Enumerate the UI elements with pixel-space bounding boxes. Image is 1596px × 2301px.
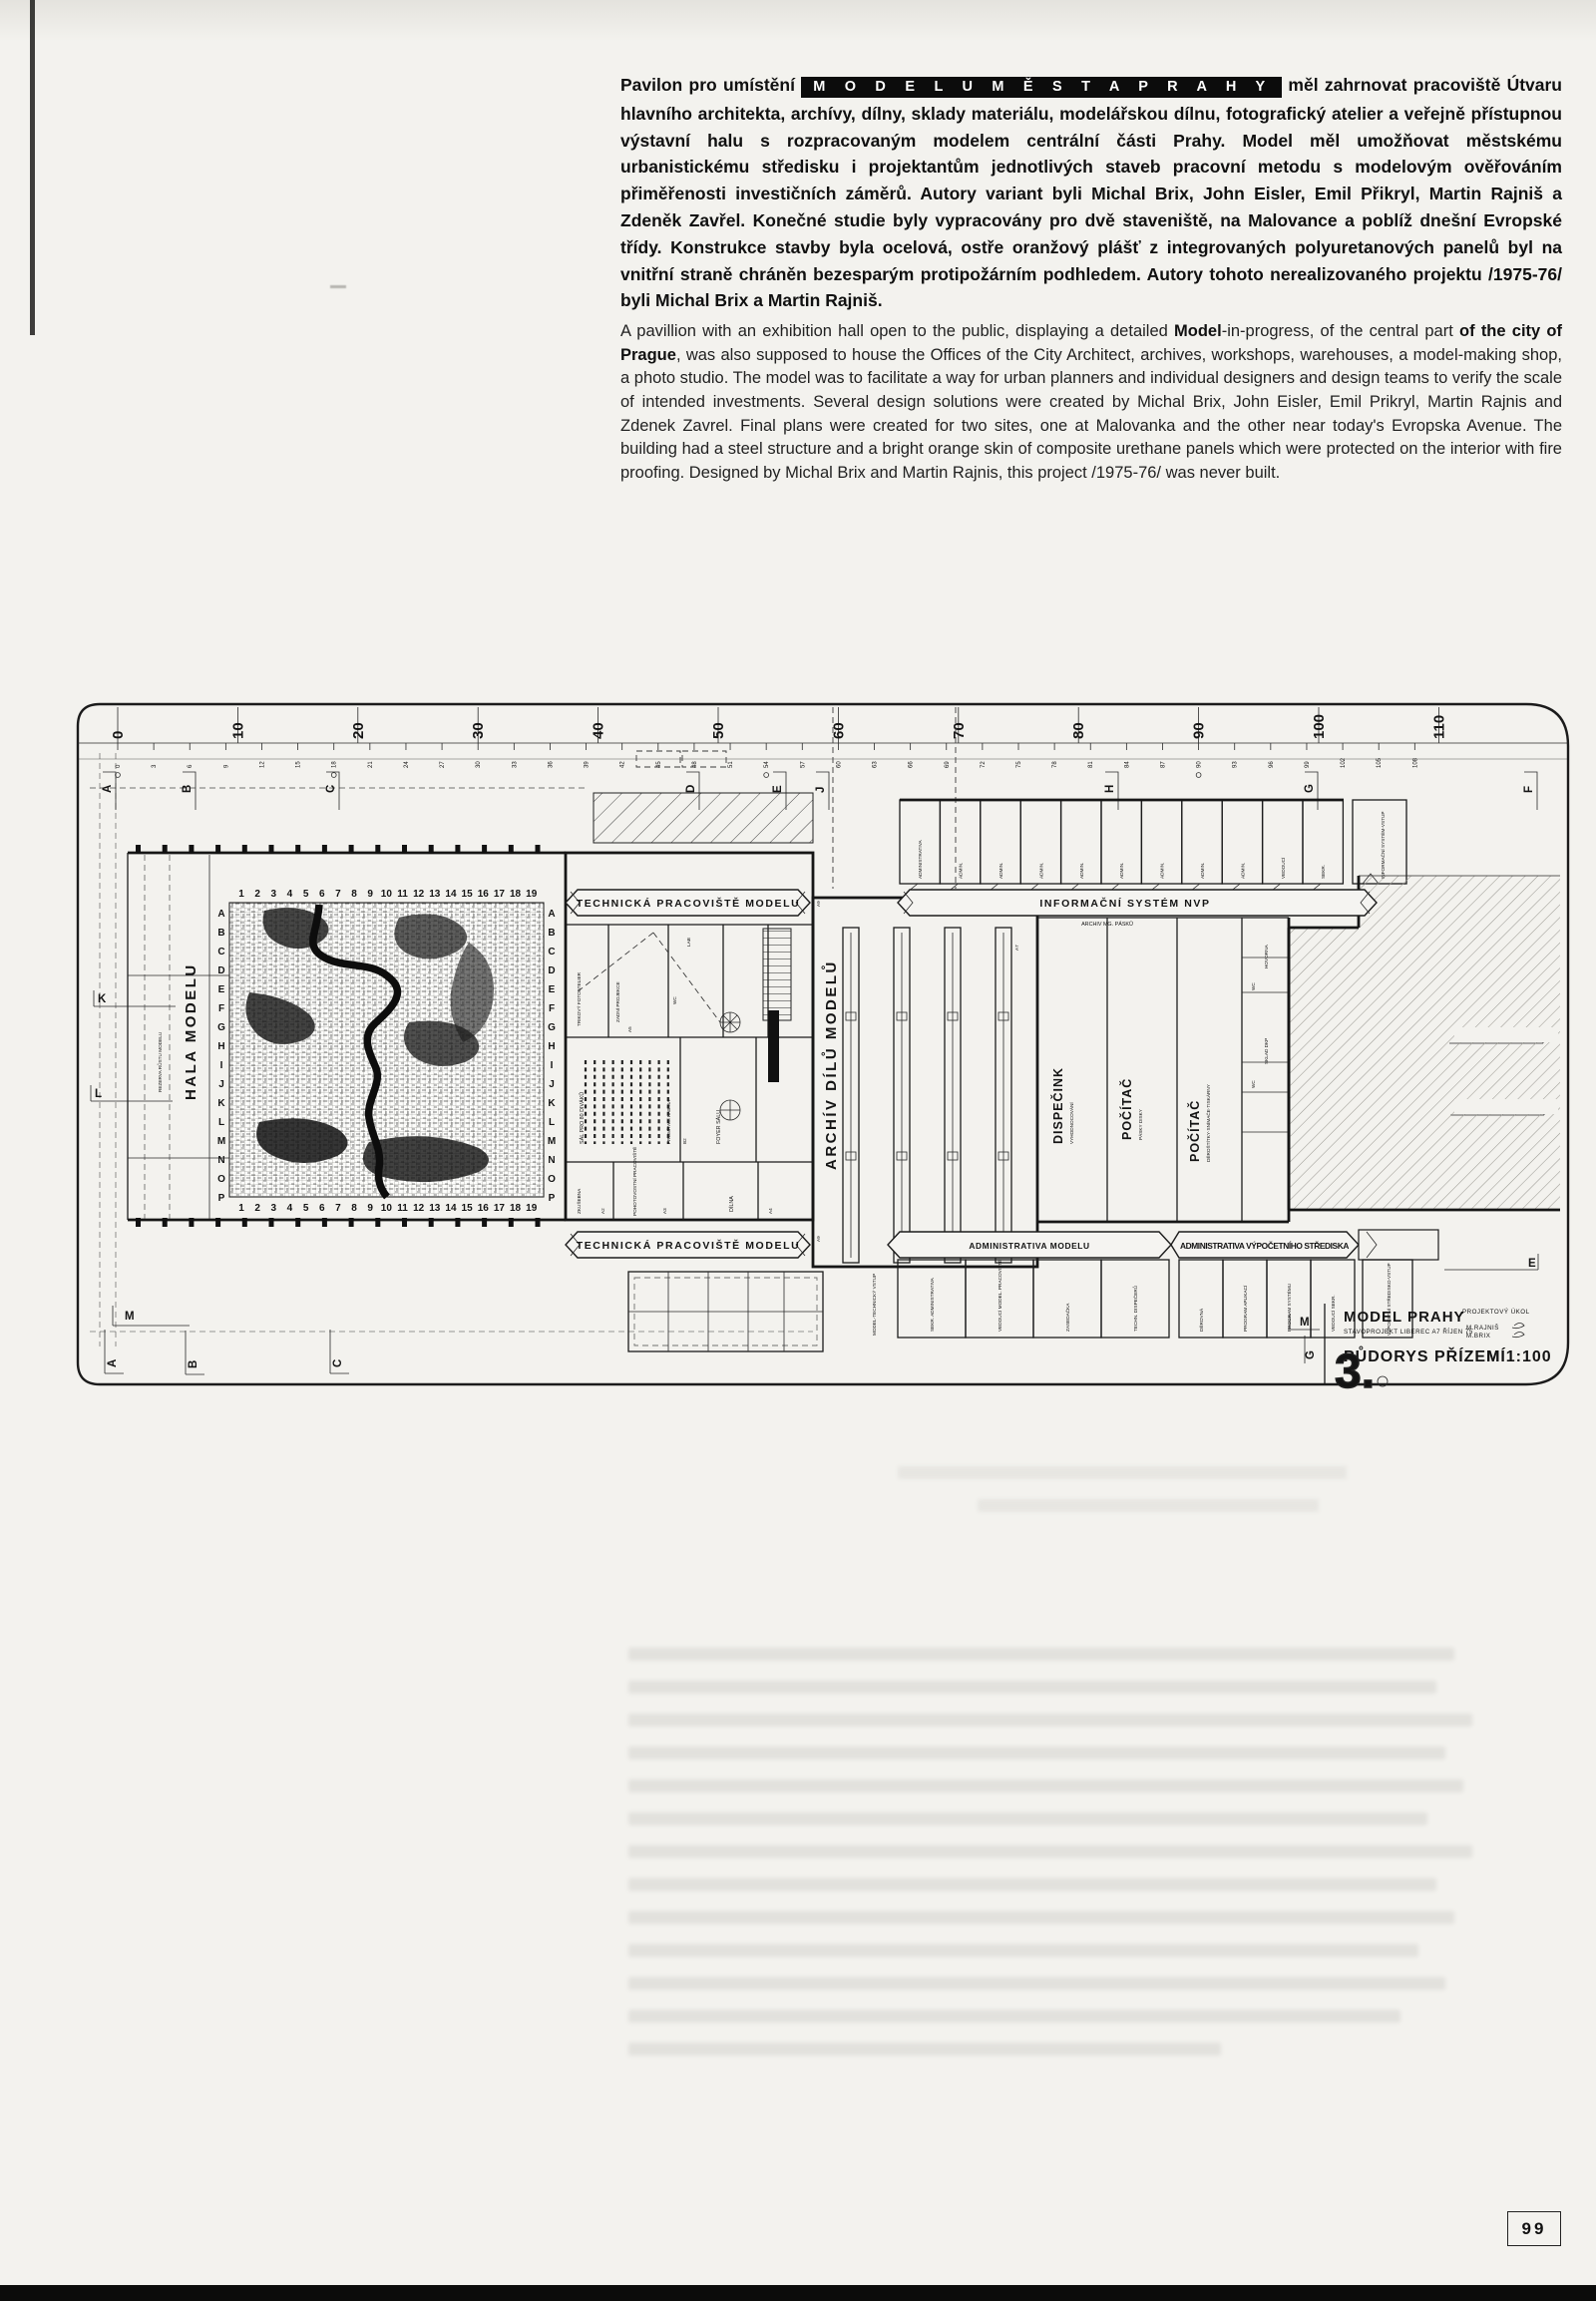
title-project: MODEL PRAHY [1344,1309,1465,1326]
map-row-letter: D [217,965,224,976]
english-paragraph: A pavillion with an exhibition hall open… [620,320,1562,485]
map-row-letter: O [217,1174,225,1185]
bleed-line [628,1944,1418,1957]
map-row-letter: E [218,984,225,995]
room-code: A4 [768,1208,773,1214]
ruler-minor-label: 27 [440,761,446,768]
ruler-major-label: 80 [1070,722,1087,739]
ruler-minor-label: 18 [332,761,338,768]
room-label-pocitac-2-sub: DĚROŠTÍTKY·SNÍMAČE·TISKÁRNY [1204,1083,1211,1162]
map-col-number: 5 [303,1203,309,1214]
corridor-label-tech-bottom: TECHNICKÁ PRACOVIŠTĚ MODELU [577,1239,801,1252]
map-col-number: 11 [397,1203,408,1214]
map-col-number: 14 [445,889,457,900]
room-label-rezerva: REZERVA RŮSTU MODELU [157,1031,163,1092]
registration-dash [330,285,346,288]
ruler-major-label: 110 [1430,715,1447,739]
ruler-minor-label: 93 [1233,761,1239,768]
ruler-minor-label: 57 [800,761,806,768]
admin-cell-label: ADMIN. [1038,863,1043,879]
ruler-minor-label: 66 [909,761,915,768]
scan-noise-strip [0,0,1596,42]
page-number-value: 99 [1522,2219,1547,2239]
map-col-number: 18 [510,889,522,900]
title-highlight: M O D E L U M Ě S T A P R A H Y [801,77,1282,98]
map-row-letter: O [548,1174,556,1185]
room-label-pocitac-1: POČÍTAČ [1119,1078,1134,1140]
ruler-minor-label: 36 [548,761,554,768]
map-row-letter: J [218,1079,224,1090]
room-label-bottom-left: TECHN. DISPEČERŮ [1132,1285,1138,1332]
room-label-bottom-right: PROGRAM SYSTÉMU [1286,1283,1292,1332]
room-label-bottom-left: ZASEDAČKA [1064,1303,1070,1332]
ruler-minor-label: 87 [1160,761,1166,768]
bleed-line [628,1878,1436,1891]
ruler-minor-label: 90 [1197,761,1203,768]
admin-cell-label: SEKR. [1321,865,1326,879]
title-author-2: M.BRIX [1466,1333,1490,1340]
map-row-letter: L [549,1117,555,1128]
bleed-line [628,1681,1436,1694]
ruler-major-label: 20 [350,722,367,739]
bleed-line [628,1812,1427,1825]
room-label-sal: SÁL PRO 80 DIVÁKŮ [579,1092,586,1144]
room-label-bottom-right: VEDOUCÍ SEKR. [1330,1295,1336,1332]
map-col-number: 3 [271,1203,277,1214]
room-label-hovorna: HOVORNA [1264,944,1269,968]
map-row-letter: F [218,1003,224,1014]
map-col-number: 5 [303,889,309,900]
section-marker-top: J [815,787,827,793]
english-seg: A pavillion with an exhibition hall open… [620,322,1174,340]
title-office: STAVOPROJEKT LIBEREC A7 ŘÍJEN 75 [1344,1328,1473,1336]
room-code: A2 [600,1208,605,1214]
scanned-book-page: Pavilon pro umístění M O D E L U M Ě S T… [0,0,1596,2301]
ruler-major-label: 100 [1311,714,1328,739]
ruler-minor-label: 60 [836,761,842,768]
map-row-letter: E [549,984,556,995]
section-marker-top: H [1104,785,1116,793]
ruler-major-label: 40 [591,722,607,739]
room-label-info-vstup: INFORMAČNÍ SYSTÉM-VSTUP [1380,812,1386,879]
map-row-letter: B [217,928,224,939]
hatched-area [1289,876,1560,1210]
czech-lead: Pavilon pro umístění [620,75,801,95]
section-marker-bottom: C [332,1359,344,1367]
corridor-label-admin-modelu: ADMINISTRATIVA MODELU [969,1241,1089,1251]
map-row-letter: G [548,1022,556,1033]
map-row-letter: N [217,1155,224,1166]
map-col-number: 19 [526,1203,538,1214]
room-code: B2 [682,1138,687,1144]
bleed-line [628,2010,1400,2023]
room-label-zadni-projekce: ZADNÍ PROJEKCE [614,981,620,1022]
room-label-trikovy: TRIKOVÝ FOTOATELIER [576,971,582,1026]
title-scale: M 1:100 [1486,1348,1552,1365]
room-code: A7 [1014,945,1019,951]
map-row-letter: C [548,947,555,958]
central-block: TRIKOVÝ FOTOATELIER ZADNÍ PROJEKCE LAB W… [566,751,823,1351]
map-col-number: 16 [478,889,490,900]
map-col-number: 1 [238,889,244,900]
map-col-number: 2 [254,1203,260,1214]
map-row-letter: H [548,1041,555,1052]
ruler-minor-label: 24 [404,761,410,768]
admin-cell-label: ADMIN. [959,863,964,879]
scan-edge-mark [30,0,35,335]
map-col-number: 11 [397,889,408,900]
room-label-hala-modelu: HALA MODELU [183,962,199,1100]
ruler-minor-label: 6 [188,764,194,768]
ruler-minor-label: 105 [1377,757,1383,768]
room-label-pocitac-1-sub: PÁSKY DISKY [1137,1108,1143,1140]
section-marker-top: B [182,785,194,793]
map-col-number: 6 [319,1203,325,1214]
room-label-bottom-left: VEDOUCÍ MODEL. PRACOVIŠTĚ [996,1260,1002,1332]
scan-bottom-strip [0,2285,1596,2301]
ruler-minor-label: 102 [1341,757,1347,768]
ruler-minor-label: 12 [259,761,265,768]
room-code: A9 [816,1236,821,1242]
section-marker-left: L [95,1088,102,1100]
bleed-line [628,1845,1472,1858]
map-row-letter: M [548,1136,556,1147]
map-col-number: 3 [271,889,277,900]
scale-ruler: 0102030405060708090100110036912151821242… [110,707,1447,777]
title-task: PROJEKTOVÝ ÚKOL [1462,1309,1530,1316]
map-col-number: 10 [381,1203,393,1214]
sheet-number: 3. [1335,1345,1375,1391]
admin-cell-label: ADMIN. [1240,863,1245,879]
bleed-line [628,1977,1445,1990]
auditorium-seats [586,1060,668,1144]
map-col-number: 7 [335,889,341,900]
room-label-wc: WC [1251,982,1256,990]
room-label-foyer: FOYER SÁLU [715,1110,722,1144]
room-label-zkusebna: ZKUŠEBNA [576,1188,582,1214]
room-label-sklad-dkp: SKLAD DKP [1264,1038,1269,1064]
map-row-letter: B [548,928,555,939]
map-col-number: 4 [287,1203,293,1214]
bleed-line [628,1746,1445,1759]
english-seg: -in-progress, of the central part [1222,322,1459,340]
map-row-letter: C [217,947,224,958]
room-code: A6 [767,1026,772,1032]
section-marker-bottom: B [188,1360,199,1368]
map-col-number: 2 [254,889,260,900]
section-marker-left: K [98,993,107,1005]
map-col-number: 17 [494,1203,506,1214]
map-col-number: 15 [462,889,474,900]
english-seg: , was also supposed to house the Offices… [620,346,1562,482]
map-col-number: 4 [287,889,293,900]
bleed-line [628,1911,1454,1924]
ruler-minor-label: 9 [223,764,229,768]
room-label-promitaci: PROMÍTACÍ KABINA [665,1099,671,1144]
corridor-label-tech-top: TECHNICKÁ PRACOVIŠTĚ MODELU [577,897,801,910]
map-row-letter: M [217,1136,225,1147]
ruler-minor-label: 108 [1412,757,1418,768]
signature-squiggle [1512,1324,1524,1338]
ruler-minor-label: 63 [873,761,879,768]
map-row-letter: P [549,1193,556,1204]
map-col-number: 13 [429,889,441,900]
map-col-number: 9 [367,889,373,900]
section-marker-top: F [1523,786,1535,793]
map-row-letter: D [548,965,555,976]
admin-cell-label: ADMIN. [1200,863,1205,879]
article-text-block: Pavilon pro umístění M O D E L U M Ě S T… [620,72,1562,485]
room-label-archiv-mg: ARCHIV MG. PÁSKŮ [1081,921,1133,928]
room-label-pohotovostni: POHOTOVOSTNÍ PRACOVIŠTĚ [630,1147,637,1216]
computing-wing: ARCHIV MG. PÁSKŮ DISPEČINK VYHODNOCOVÁNÍ… [1037,918,1289,1222]
map-row-letter: F [549,1003,555,1014]
section-marker-top: D [685,785,697,793]
map-col-number: 8 [351,1203,357,1214]
ruler-minor-label: 96 [1269,761,1275,768]
map-row-letter: K [217,1098,225,1109]
admin-cell-label: ADMIN. [1119,863,1124,879]
corridor-label-info-system: INFORMAČNÍ SYSTÉM NVP [1039,897,1210,910]
ruler-minor-label: 42 [620,761,626,768]
section-marker-bottom: M [125,1311,135,1323]
map-col-number: 17 [494,889,506,900]
ruler-minor-label: 78 [1052,761,1058,768]
bleed-line [898,1466,1347,1479]
map-col-number: 12 [413,889,425,900]
bottom-room-rows: SEKR. ADMINISTRATIVAVEDOUCÍ MODEL. PRACO… [871,1260,1412,1338]
ruler-minor-label: 15 [296,761,302,768]
ruler-minor-label: 75 [1016,761,1022,768]
room-code: A9 [816,901,821,907]
map-col-number: 8 [351,889,357,900]
room-label-archiv: ARCHÍV DÍLŮ MODELŮ [821,959,840,1170]
room-label-bottom-left: SEKR. ADMINISTRATIVA [930,1277,935,1332]
room-label-dispecink-sub: VYHODNOCOVÁNÍ [1068,1102,1074,1144]
map-col-number: 13 [429,1203,441,1214]
map-col-number: 19 [526,889,538,900]
map-row-letter: N [548,1155,555,1166]
outbuilding [628,1272,823,1351]
page-number: 99 [1507,2211,1561,2246]
title-block: MODEL PRAHY PROJEKTOVÝ ÚKOL STAVOPROJEKT… [1325,1304,1552,1391]
ruler-minor-label: 69 [945,761,951,768]
ruler-minor-label: 99 [1305,761,1311,768]
ruler-minor-label: 21 [368,761,374,768]
room-label-bottom-right: DĚROVNÁ [1197,1308,1204,1332]
ruler-minor-label: 72 [981,761,987,768]
czech-body: měl zahrnovat pracoviště Útvaru hlavního… [620,75,1562,310]
ruler-major-label: 0 [110,731,127,739]
bleed-line [628,1648,1454,1661]
room-code: A5 [627,1026,632,1032]
ruler-major-label: 50 [710,722,727,739]
ruler-minor-label: 51 [728,761,734,768]
map-col-number: 7 [335,1203,341,1214]
room-code: A3 [662,1208,667,1214]
map-row-letter: L [218,1117,224,1128]
archive-hall: ARCHÍV DÍLŮ MODELŮ A7 A9 A9 [813,898,1037,1267]
ruler-minor-label: 81 [1088,761,1094,768]
room-label-pocitac-2: POČÍTAČ [1187,1100,1202,1162]
ruler-minor-label: 33 [512,761,518,768]
map-col-number: 12 [413,1203,425,1214]
map-col-number: 6 [319,889,325,900]
english-bold: Model [1174,322,1222,340]
room-label-dispecink: DISPEČINK [1050,1067,1065,1144]
ruler-minor-label: 84 [1124,761,1130,768]
room-label-lab: LAB [686,938,691,947]
corridor-label-admin-vs: ADMINISTRATIVA VÝPOČETNÍHO STŘEDISKA [1180,1240,1350,1251]
model-hall: REZERVA RŮSTU MODELU HALA MODELU 1122334… [128,845,566,1227]
ruler-minor-label: 30 [476,761,482,768]
prague-model-map [229,903,544,1197]
map-row-letter: P [218,1193,225,1204]
section-marker-top: C [325,785,337,793]
room-label-bottom-right: PROGRAM APLIKACÍ [1242,1285,1248,1332]
map-row-letter: I [220,1060,223,1071]
admin-cell-label: ADMIN. [998,863,1003,879]
admin-cell-label: ADMIN. [1160,863,1165,879]
map-col-number: 16 [478,1203,490,1214]
map-row-letter: A [548,909,555,920]
title-author-1: M.RAJNIŠ [1466,1325,1499,1332]
map-col-number: 10 [381,889,393,900]
section-marker-bottom: A [107,1359,119,1367]
bleed-line [978,1499,1319,1512]
room-label-model-vstup: MODEL-TECHNICKÝ VSTUP [871,1274,877,1336]
map-col-number: 1 [238,1203,244,1214]
ruler-major-label: 30 [470,722,487,739]
room-label-wc: WC [672,996,677,1004]
section-marker-top: A [102,785,114,793]
ruler-minor-label: 54 [764,761,770,768]
map-row-letter: H [217,1041,224,1052]
bleed-line [628,1714,1472,1726]
ruler-minor-label: 0 [116,764,122,768]
map-row-letter: K [548,1098,556,1109]
admin-cell-label: ADMIN. [1079,863,1084,879]
room-label-wc: WC [1251,1080,1256,1088]
section-marker-title: M [1300,1317,1310,1329]
section-marker-title: G [1305,1350,1317,1359]
room-label-dilna: DÍLNA [728,1196,735,1212]
admin-cell-label: ADMINISTRATIVA [918,839,923,879]
map-row-letter: I [551,1060,554,1071]
czech-paragraph: Pavilon pro umístění M O D E L U M Ě S T… [620,72,1562,314]
bleed-line [628,1779,1463,1792]
floor-plan-drawing: 0102030405060708090100110036912151821242… [70,693,1571,1391]
bleed-line [628,2043,1221,2056]
admin-cell-label: VEDOUCÍ [1280,857,1286,879]
map-row-letter: G [217,1022,225,1033]
map-col-number: 15 [462,1203,474,1214]
map-row-letter: A [217,909,224,920]
ruler-major-label: 70 [951,722,968,739]
section-marker-right: E [1528,1258,1536,1270]
map-col-number: 18 [510,1203,522,1214]
section-marker-top: E [772,785,784,793]
ruler-minor-label: 39 [585,761,591,768]
ruler-major-label: 10 [229,722,246,739]
section-marker-top: G [1304,784,1316,793]
map-col-number: 9 [367,1203,373,1214]
ruler-major-label: 90 [1191,722,1208,739]
ruler-minor-label: 3 [152,764,158,768]
map-row-letter: J [549,1079,555,1090]
map-col-number: 14 [445,1203,457,1214]
archive-racks [843,928,1011,1263]
